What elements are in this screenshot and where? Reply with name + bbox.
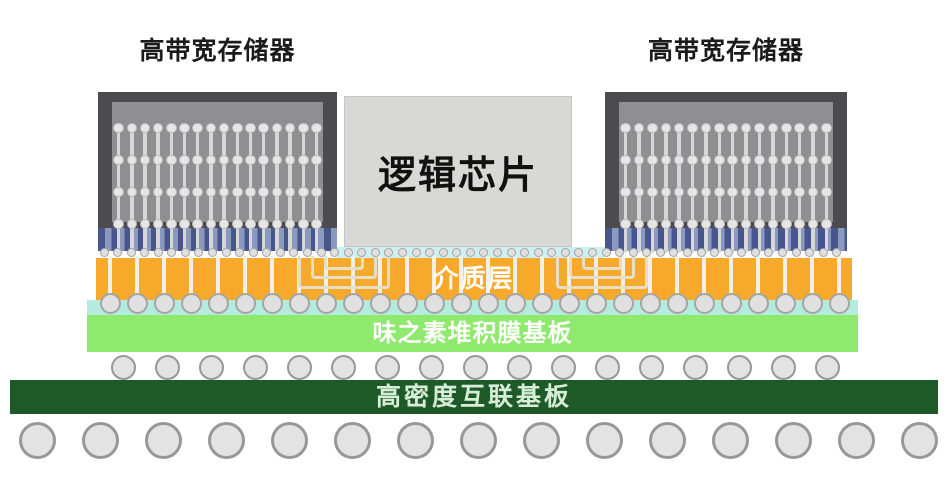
bga-ball-bottom	[523, 422, 560, 459]
bga-ball-bottom	[712, 422, 749, 459]
bga-ball-bottom	[145, 422, 182, 459]
bga-ball-bottom	[460, 422, 497, 459]
bga-ball-bottom	[775, 422, 812, 459]
bga-ball-bottom	[838, 422, 875, 459]
bga-ball-bottom	[208, 422, 245, 459]
bga-ball-bottom	[586, 422, 623, 459]
bga-ball-bottom	[649, 422, 686, 459]
bottom-ball-row-layer	[0, 0, 950, 500]
bga-ball-bottom	[397, 422, 434, 459]
bga-ball-bottom	[82, 422, 119, 459]
bga-ball-bottom	[901, 422, 938, 459]
package-diagram: 高带宽存储器 高带宽存储器 逻辑芯片 介质层 味之素堆积膜基板 高密度互联基板	[0, 0, 950, 500]
bga-ball-bottom	[334, 422, 371, 459]
bga-ball-bottom	[19, 422, 56, 459]
bga-ball-bottom	[271, 422, 308, 459]
